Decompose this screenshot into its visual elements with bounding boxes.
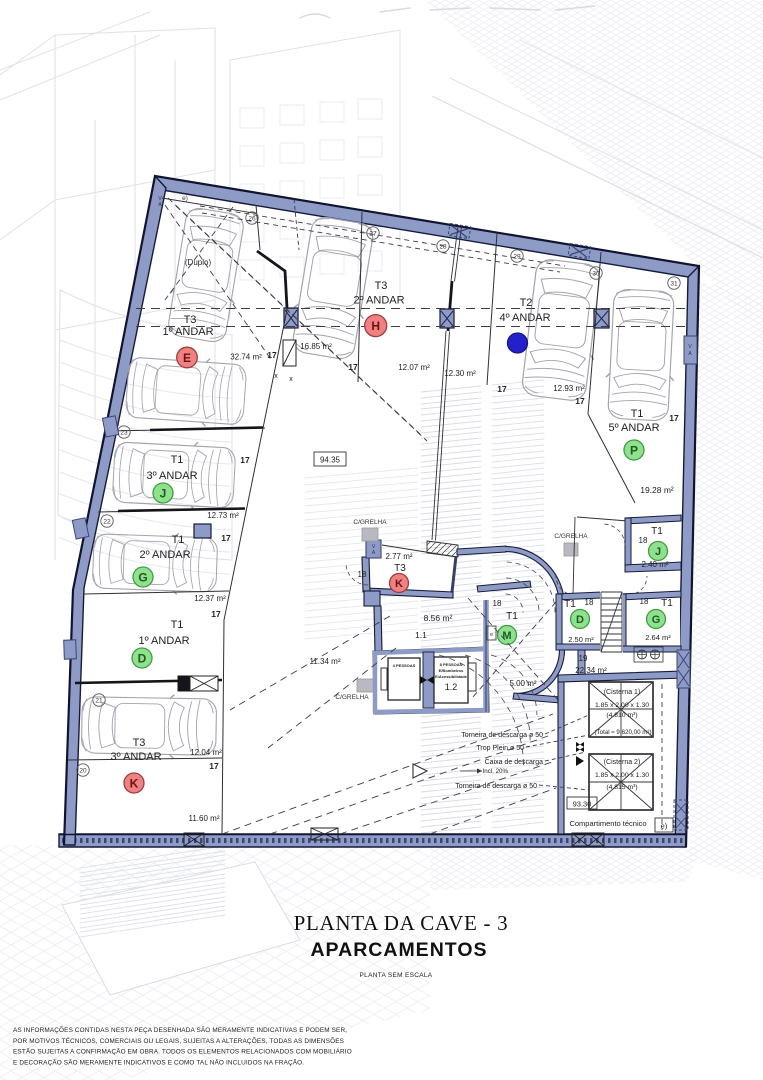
svg-text:Torneira de descarga ø 50: Torneira de descarga ø 50 [455,783,537,790]
svg-text:17: 17 [240,455,250,465]
svg-text:POR MOTIVOS TÉCNICOS, COMERCIA: POR MOTIVOS TÉCNICOS, COMERCIAIS OU LEGA… [13,1036,344,1045]
svg-text:1.85 x 2.00 x 1.30: 1.85 x 2.00 x 1.30 [595,772,649,779]
svg-text:12.30 m²: 12.30 m² [444,369,476,378]
svg-text:T1: T1 [171,454,184,466]
svg-text:(4.810 m³): (4.810 m³) [606,712,637,719]
svg-text:E: E [183,351,191,365]
svg-text:2º ANDAR: 2º ANDAR [139,549,190,561]
svg-text:31: 31 [670,280,678,287]
svg-text:4º ANDAR: 4º ANDAR [499,312,550,324]
svg-text:x: x [289,376,293,383]
svg-text:K: K [130,776,139,790]
svg-text:1º ANDAR: 1º ANDAR [138,635,189,647]
svg-text:94.35: 94.35 [320,456,341,465]
svg-text:T2: T2 [520,297,533,309]
svg-text:APARCAMENTOS: APARCAMENTOS [310,939,487,961]
svg-text:17: 17 [221,533,231,543]
svg-text:(Total ≈ 9.620,00 m³): (Total ≈ 9.620,00 m³) [594,729,651,736]
svg-text:T1: T1 [171,619,184,631]
svg-text:(Cisterna 1): (Cisterna 1) [604,689,641,696]
svg-text:16.85 m²: 16.85 m² [300,342,332,351]
svg-text:E DECORAÇÃO SÃO MERAMENTE INDI: E DECORAÇÃO SÃO MERAMENTE INDICATIVOS E … [13,1057,304,1066]
svg-text:5.00 m²: 5.00 m² [509,679,536,688]
svg-text:22: 22 [103,518,111,525]
svg-text:17: 17 [497,384,507,394]
svg-text:18: 18 [493,599,502,608]
svg-text:19.28 m²: 19.28 m² [640,485,674,495]
svg-text:(Cisterna 2): (Cisterna 2) [604,759,641,766]
svg-text:12.93 m²: 12.93 m² [553,384,585,393]
svg-text:T1: T1 [172,534,185,546]
svg-text:G: G [652,614,661,626]
svg-text:x: x [274,373,278,380]
svg-text:D: D [138,651,147,665]
svg-text:5º ANDAR: 5º ANDAR [608,422,659,434]
svg-text:18: 18 [639,536,648,545]
svg-text:8.56 m²: 8.56 m² [424,613,453,623]
svg-text:T3: T3 [184,314,197,326]
svg-text:26: 26 [248,215,256,222]
svg-text:T3: T3 [133,737,146,749]
svg-text:17: 17 [348,362,358,372]
svg-text:C/GRELHA: C/GRELHA [554,533,588,540]
svg-text:32.74 m²: 32.74 m² [230,353,262,362]
svg-text:2.77 m²: 2.77 m² [385,552,412,561]
svg-text:12.37 m²: 12.37 m² [194,594,226,603]
svg-text:27: 27 [369,230,377,237]
svg-text:P: P [630,443,638,457]
svg-text:18: 18 [358,570,367,579]
svg-text:ESTÃO SUJEITAS A CONFIRMAÇÃO E: ESTÃO SUJEITAS A CONFIRMAÇÃO EM OBRA. TO… [13,1047,352,1056]
svg-text:19: 19 [579,654,588,663]
svg-text:1.2: 1.2 [445,682,458,692]
svg-text:2.40 m²: 2.40 m² [641,560,668,569]
svg-text:1.85 x 2.00 x 1.30: 1.85 x 2.00 x 1.30 [595,702,649,709]
svg-text:21: 21 [95,697,103,704]
svg-text:28: 28 [439,243,447,250]
svg-text:17: 17 [267,350,277,360]
svg-text:J: J [655,546,661,558]
svg-text:29: 29 [513,253,521,260]
svg-text:12.04 m²: 12.04 m² [190,748,222,757]
svg-text:(Duplo): (Duplo) [185,258,212,267]
svg-text:Compartimento técnico: Compartimento técnico [569,819,646,828]
svg-text:T1: T1 [631,408,644,420]
svg-text:M: M [502,630,511,642]
svg-text:C/GRELHA: C/GRELHA [335,694,369,701]
svg-text:93.30: 93.30 [573,800,592,809]
svg-text:T3: T3 [375,280,388,292]
svg-text:4 PESSOAS: 4 PESSOAS [393,663,416,668]
svg-text:17: 17 [211,609,221,619]
svg-text:17: 17 [575,396,585,406]
svg-text:30: 30 [592,270,600,277]
svg-text:E/Acessibilidade: E/Acessibilidade [435,674,468,679]
svg-text:D: D [576,614,584,626]
svg-text:3º ANDAR: 3º ANDAR [110,751,161,763]
svg-text:Trop Plein ø 50: Trop Plein ø 50 [476,745,524,752]
svg-text:11.60 m²: 11.60 m² [189,814,220,823]
svg-text:E/Bombeiros: E/Bombeiros [439,668,464,673]
svg-text:12.73 m²: 12.73 m² [207,511,239,520]
svg-text:H: H [371,319,380,333]
svg-text:G: G [138,570,147,584]
svg-text:(4.815 m³): (4.815 m³) [606,784,637,791]
svg-text:K: K [395,578,403,590]
svg-text:PLANTA DA CAVE - 3: PLANTA DA CAVE - 3 [294,911,509,935]
svg-text:11.34 m²: 11.34 m² [310,657,341,666]
svg-text:8 PESSOAS: 8 PESSOAS [440,662,463,667]
svg-text:20: 20 [79,767,87,774]
svg-text:18: 18 [640,597,649,606]
svg-text:1.1: 1.1 [415,630,427,640]
svg-text:Caixa de descarga: Caixa de descarga [485,759,543,766]
svg-text:18: 18 [585,598,594,607]
svg-text:17: 17 [209,761,219,771]
svg-text:T1: T1 [506,611,518,622]
svg-text:3º ANDAR: 3º ANDAR [146,470,197,482]
svg-text:Incl. 20%: Incl. 20% [483,768,509,775]
svg-text:T1: T1 [661,598,673,609]
svg-text:T1: T1 [564,599,576,610]
svg-text:12.07 m²: 12.07 m² [398,363,430,372]
svg-text:23: 23 [120,429,128,436]
svg-text:Torneira de descarga ø 50: Torneira de descarga ø 50 [461,732,543,739]
svg-text:2.50 m²: 2.50 m² [568,635,594,644]
svg-text:2º ANDAR: 2º ANDAR [353,295,404,307]
svg-text:2.64 m²: 2.64 m² [645,633,671,642]
svg-text:AS INFORMAÇÕES CONTIDAS NESTA: AS INFORMAÇÕES CONTIDAS NESTA PEÇA DESEN… [13,1025,347,1034]
svg-text:PLANTA SEM ESCALA: PLANTA SEM ESCALA [360,972,433,979]
svg-text:T1: T1 [651,526,663,537]
svg-text:1º ANDAR: 1º ANDAR [162,326,213,338]
svg-text:T3: T3 [394,563,406,574]
svg-text:e): e) [182,195,188,202]
svg-text:C/GRELHA: C/GRELHA [353,519,387,526]
svg-text:e: e [490,632,493,638]
svg-text:J: J [160,486,167,500]
svg-text:17: 17 [669,413,679,423]
